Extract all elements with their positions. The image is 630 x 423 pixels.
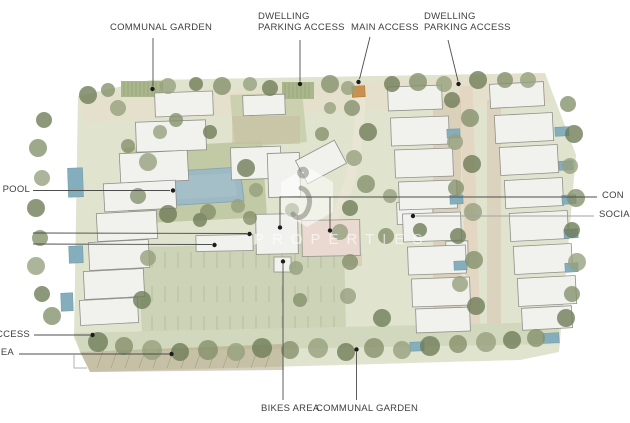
- label-text: PARKING ACCESS: [424, 23, 511, 34]
- label-social-right: SOCIA: [599, 210, 630, 221]
- label-text: NG POOL: [0, 185, 30, 196]
- label-dwelling-parking-right: DWELLING PARKING ACCESS: [424, 12, 511, 33]
- label-text: DWELLING: [424, 12, 511, 23]
- watermark-text: PROPERTIES: [254, 231, 430, 248]
- label-text: COMMUNAL GARDEN: [110, 23, 212, 34]
- leader-dot: [411, 214, 415, 218]
- leader-dot: [354, 347, 358, 351]
- label-text: DWELLING: [258, 12, 345, 23]
- label-text: CON: [602, 191, 624, 202]
- label-text: BIKES AREA: [261, 404, 319, 415]
- label-access-left: ACCESS: [0, 330, 30, 341]
- label-communal-garden-bottom: COMMUNAL GARDEN: [316, 404, 418, 415]
- leader-cut-label-2: [33, 244, 212, 245]
- label-text: MAIN ACCESS: [351, 23, 419, 34]
- leader-main-access: [360, 37, 371, 79]
- label-communal-right: CON: [602, 191, 624, 202]
- label-text: ACCESS: [0, 330, 30, 341]
- leader-dot: [212, 243, 216, 247]
- leader-dot: [90, 333, 94, 337]
- label-text: EA: [1, 348, 14, 359]
- label-communal-garden-top: COMMUNAL GARDEN: [110, 23, 212, 34]
- leader-dot: [281, 259, 285, 263]
- label-swimming-pool: NG POOL: [0, 185, 30, 196]
- label-bikes-area: BIKES AREA: [261, 404, 319, 415]
- leader-dot: [150, 87, 154, 91]
- leader-dot: [171, 188, 175, 192]
- leader-dot: [298, 82, 302, 86]
- site-plan-screenshot: PROPERTIES: [0, 0, 630, 423]
- label-text: SOCIA: [599, 210, 630, 221]
- leader-dot: [278, 225, 282, 229]
- leader-dot: [456, 82, 460, 86]
- leader-dot: [328, 228, 332, 232]
- leader-dot: [247, 232, 251, 236]
- label-area-left: EA: [1, 348, 14, 359]
- label-text: PARKING ACCESS: [258, 23, 345, 34]
- leader-dot: [169, 352, 173, 356]
- leader-cut-label-1: [33, 233, 247, 234]
- label-text: COMMUNAL GARDEN: [316, 404, 418, 415]
- label-dwelling-parking-left: DWELLING PARKING ACCESS: [258, 12, 345, 33]
- leader-dot: [356, 80, 360, 84]
- label-main-access: MAIN ACCESS: [351, 23, 419, 34]
- site-plan-illustration: PROPERTIES: [0, 0, 630, 423]
